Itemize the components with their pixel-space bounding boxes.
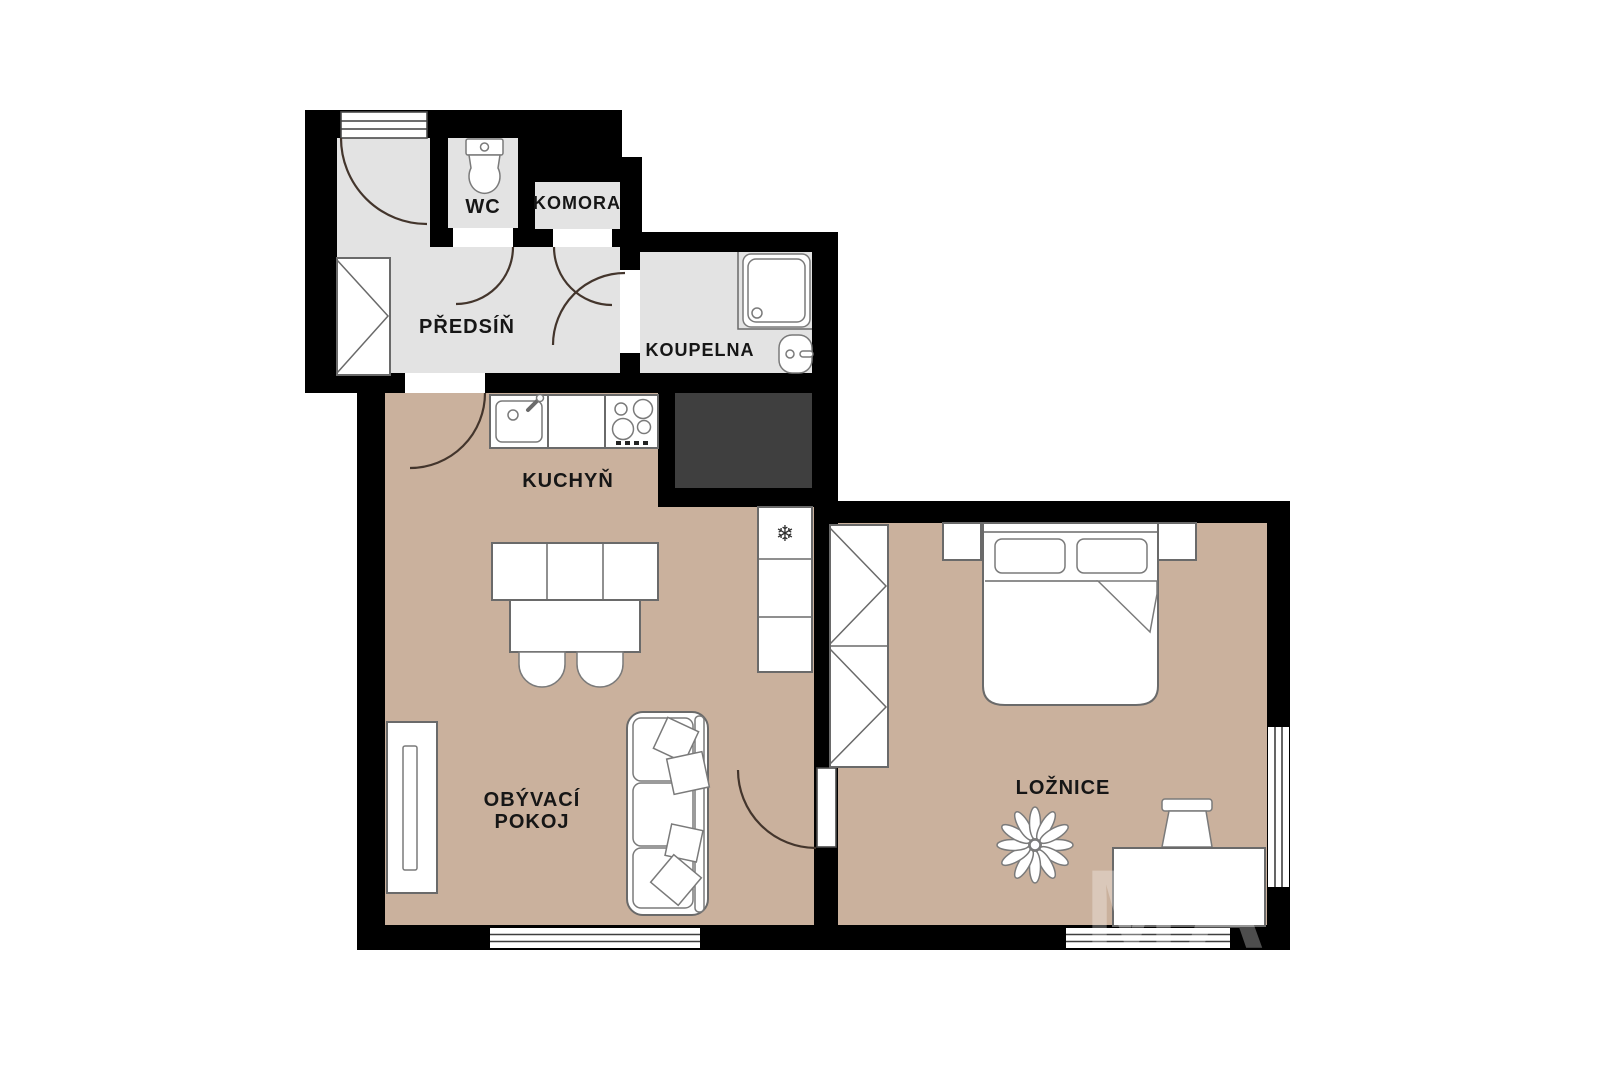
sideboard-cabinets <box>492 543 658 600</box>
kitchen-door-opening <box>405 373 485 393</box>
entrance-door <box>341 112 427 138</box>
pillow <box>665 824 703 862</box>
bed-pillow <box>995 539 1065 573</box>
pillow <box>667 752 710 795</box>
watermark: MA <box>1085 847 1271 972</box>
bathroom-sink <box>779 335 813 373</box>
freezer-icon: ❄ <box>776 521 794 546</box>
bedroom-wardrobe <box>830 525 888 767</box>
dining-table <box>510 600 640 652</box>
bedroom-door-leaf <box>817 768 836 847</box>
living-room-window <box>490 928 700 948</box>
kitchen-counter-unit <box>548 395 605 448</box>
desk-chair <box>1162 799 1212 847</box>
bathroom-label: KOUPELNA <box>645 340 754 360</box>
bed <box>983 523 1158 705</box>
toilet <box>466 139 503 193</box>
wc-label: WC <box>465 196 500 218</box>
tv-cabinet <box>387 722 437 893</box>
pantry-door-opening <box>553 229 612 247</box>
tv <box>403 746 417 870</box>
room-pantry: KOMORA <box>533 193 621 213</box>
bathroom-door-opening <box>620 270 640 353</box>
nightstand <box>1158 523 1196 560</box>
utility-shaft <box>675 393 812 488</box>
kitchen-counter <box>490 395 658 449</box>
shower <box>738 252 812 329</box>
sofa <box>627 712 709 915</box>
kitchen-sink-drain <box>508 410 518 420</box>
nightstand <box>943 523 981 560</box>
fridge-cabinet: ❄ <box>758 507 812 672</box>
kitchen-label: KUCHYŇ <box>522 468 614 492</box>
bed-pillow <box>1077 539 1147 573</box>
room-wc: WC <box>465 139 503 218</box>
wc-door-opening <box>453 228 513 247</box>
floor-plan-page: PŘEDSÍŇ WC KOMORA KOUPELNA <box>0 0 1600 1066</box>
floor-plan: PŘEDSÍŇ WC KOMORA KOUPELNA <box>0 0 1600 1066</box>
hallway-label: PŘEDSÍŇ <box>419 314 515 338</box>
living-room-label-line1: OBÝVACÍ <box>484 787 581 811</box>
hall-wardrobe <box>337 258 390 375</box>
bedroom-window-right <box>1268 727 1289 887</box>
stove <box>605 395 658 448</box>
pantry-label: KOMORA <box>533 193 621 213</box>
living-room-label-line2: POKOJ <box>494 811 569 833</box>
bedroom-label: LOŽNICE <box>1016 775 1111 799</box>
